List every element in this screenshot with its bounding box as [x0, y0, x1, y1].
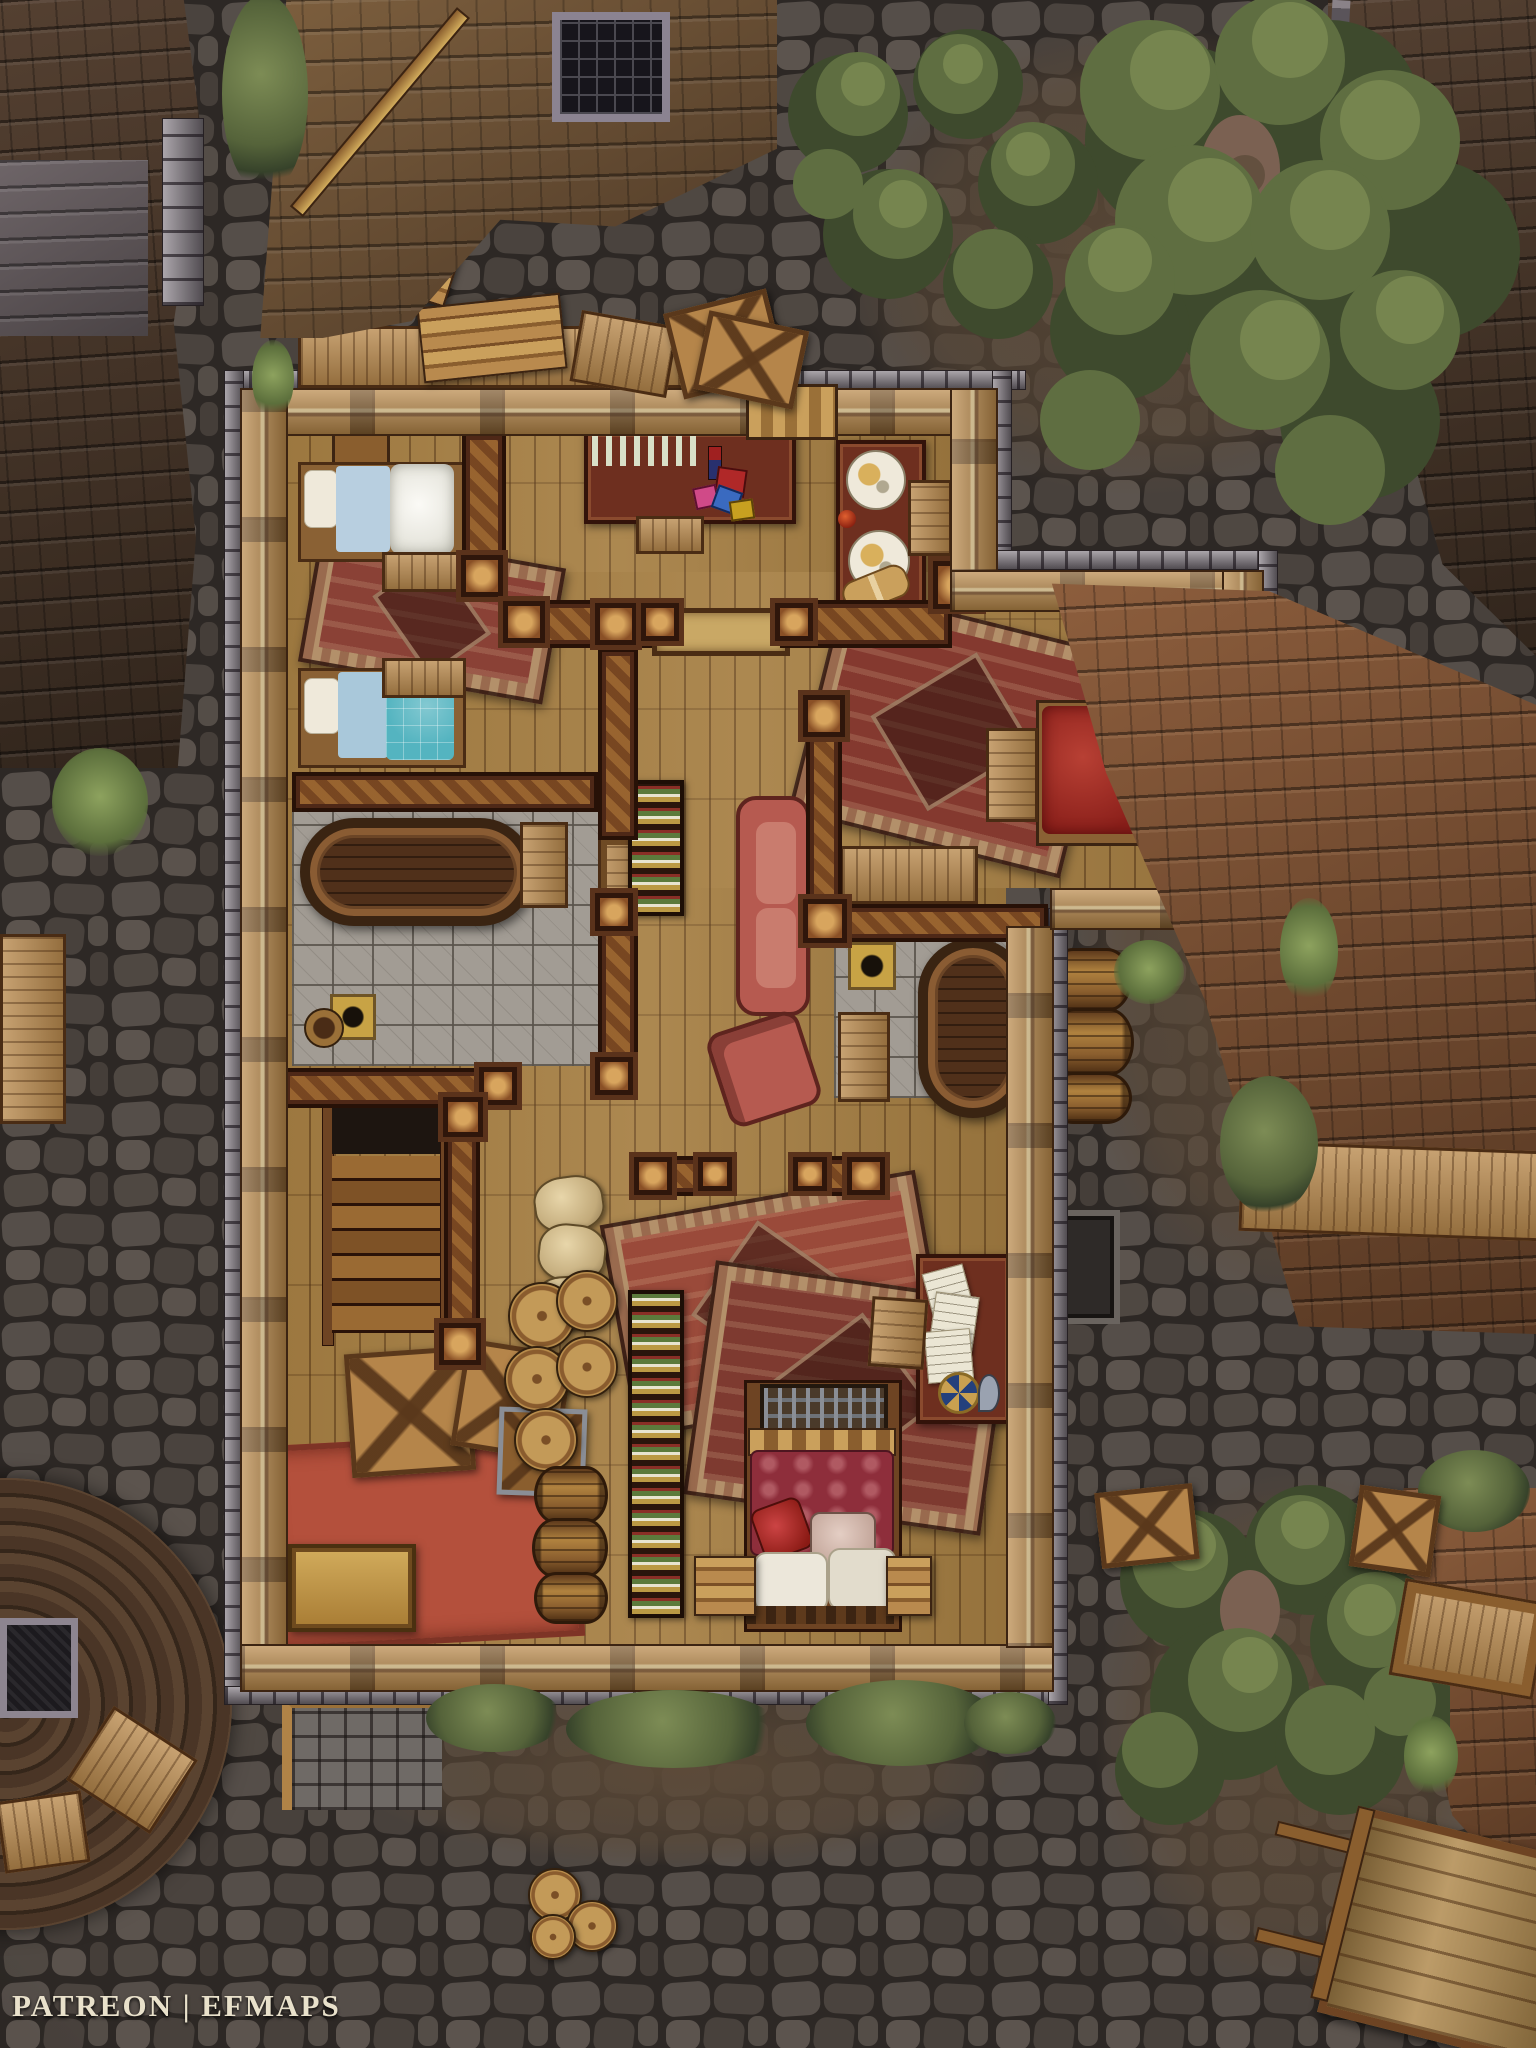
vignette-shading	[0, 0, 1536, 2048]
watermark: PATREON | EFMAPS	[12, 1988, 341, 2024]
battle-map: PATREON | EFMAPS	[0, 0, 1536, 2048]
